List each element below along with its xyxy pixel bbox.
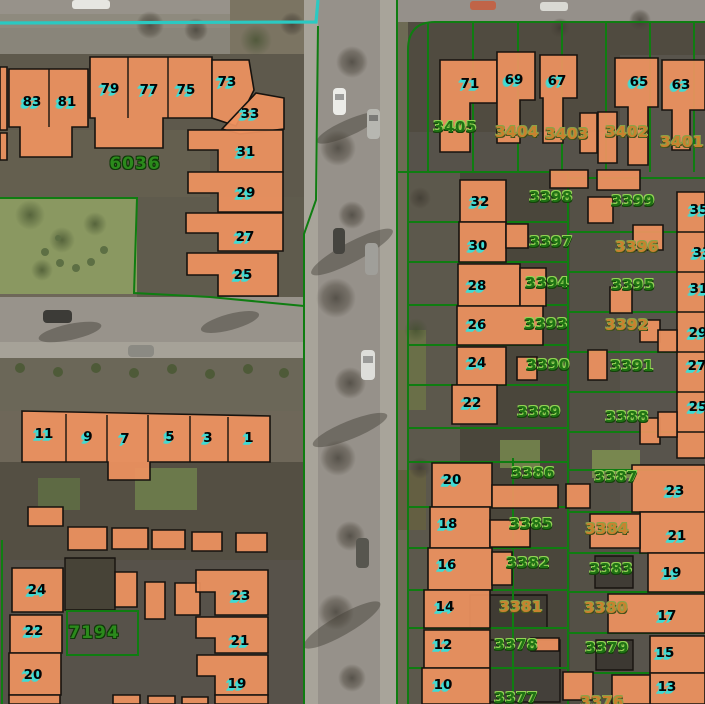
house-number-label: 25 xyxy=(234,267,253,283)
parcel-number-label: 3386 xyxy=(511,464,555,482)
house-number-label: 28 xyxy=(468,278,487,294)
map-canvas[interactable]: 8381797775733331292725119753124222023211… xyxy=(0,0,705,704)
parcel-number-label: 6036 xyxy=(109,154,160,174)
house-number-label: 1 xyxy=(244,430,253,446)
house-number-label: 22 xyxy=(25,623,44,639)
house-number-label: 15 xyxy=(656,645,675,661)
parcel-number-label: 3393 xyxy=(524,315,568,333)
house-number-label: 23 xyxy=(666,483,685,499)
parcel-number-label: 3385 xyxy=(509,515,553,533)
house-number-label: 33 xyxy=(693,245,705,261)
house-number-label: 16 xyxy=(438,557,457,573)
parcel-number-label: 3384 xyxy=(585,520,629,538)
house-number-label: 67 xyxy=(548,73,567,89)
parcel-number-label: 3402 xyxy=(605,123,649,141)
house-number-label: 71 xyxy=(461,76,480,92)
parcel-number-label: 3379 xyxy=(585,639,629,657)
house-number-label: 29 xyxy=(237,185,256,201)
parcel-number-label: 3399 xyxy=(611,192,655,210)
house-number-label: 65 xyxy=(630,74,649,90)
house-number-label: 13 xyxy=(658,679,677,695)
parcel-number-label: 7194 xyxy=(68,623,119,643)
parcel-number-label: 3405 xyxy=(433,118,477,136)
parcel-number-label: 3396 xyxy=(615,238,659,256)
parcel-number-label: 3378 xyxy=(494,636,538,654)
house-number-label: 19 xyxy=(663,565,682,581)
house-number-label: 73 xyxy=(218,74,237,90)
house-number-label: 7 xyxy=(120,431,129,447)
house-number-label: 20 xyxy=(24,667,43,683)
house-number-label: 21 xyxy=(668,528,687,544)
house-number-label: 26 xyxy=(468,317,487,333)
house-number-label: 77 xyxy=(140,82,159,98)
house-number-label: 25 xyxy=(689,399,705,415)
parcel-number-label: 3377 xyxy=(494,689,538,704)
house-number-label: 75 xyxy=(177,82,196,98)
map-labels: 8381797775733331292725119753124222023211… xyxy=(0,0,705,704)
house-number-label: 63 xyxy=(672,77,691,93)
parcel-number-label: 3401 xyxy=(660,133,704,151)
parcel-number-label: 3392 xyxy=(605,316,649,334)
house-number-label: 31 xyxy=(237,144,256,160)
house-number-label: 14 xyxy=(436,599,455,615)
parcel-number-label: 3376 xyxy=(580,693,624,704)
house-number-label: 17 xyxy=(658,608,677,624)
parcel-number-label: 3388 xyxy=(605,408,649,426)
house-number-label: 18 xyxy=(439,516,458,532)
parcel-number-label: 3382 xyxy=(506,554,550,572)
house-number-label: 24 xyxy=(468,355,487,371)
house-number-label: 69 xyxy=(505,72,524,88)
parcel-number-label: 3395 xyxy=(611,276,655,294)
house-number-label: 3 xyxy=(203,430,212,446)
parcel-number-label: 3398 xyxy=(529,188,573,206)
house-number-label: 20 xyxy=(443,472,462,488)
house-number-label: 30 xyxy=(469,238,488,254)
parcel-number-label: 3381 xyxy=(499,598,543,616)
house-number-label: 24 xyxy=(28,582,47,598)
house-number-label: 29 xyxy=(689,325,705,341)
parcel-number-label: 3394 xyxy=(525,274,569,292)
house-number-label: 11 xyxy=(35,426,54,442)
parcel-number-label: 3389 xyxy=(517,403,561,421)
parcel-number-label: 3391 xyxy=(610,357,654,375)
parcel-number-label: 3383 xyxy=(589,560,633,578)
parcel-number-label: 3380 xyxy=(584,599,628,617)
house-number-label: 22 xyxy=(463,395,482,411)
house-number-label: 27 xyxy=(236,229,255,245)
parcel-number-label: 3404 xyxy=(495,123,539,141)
house-number-label: 19 xyxy=(228,676,247,692)
house-number-label: 35 xyxy=(690,202,705,218)
house-number-label: 33 xyxy=(241,106,260,122)
house-number-label: 5 xyxy=(165,429,174,445)
parcel-number-label: 3403 xyxy=(545,125,589,143)
parcel-number-label: 3397 xyxy=(529,233,573,251)
house-number-label: 21 xyxy=(231,633,250,649)
house-number-label: 10 xyxy=(434,677,453,693)
house-number-label: 83 xyxy=(23,94,42,110)
house-number-label: 32 xyxy=(471,194,490,210)
house-number-label: 9 xyxy=(83,429,92,445)
house-number-label: 23 xyxy=(232,588,251,604)
parcel-number-label: 3387 xyxy=(594,468,638,486)
house-number-label: 79 xyxy=(101,81,120,97)
house-number-label: 12 xyxy=(434,637,453,653)
house-number-label: 31 xyxy=(690,281,705,297)
house-number-label: 81 xyxy=(58,94,77,110)
house-number-label: 27 xyxy=(688,358,705,374)
parcel-number-label: 3390 xyxy=(526,356,570,374)
